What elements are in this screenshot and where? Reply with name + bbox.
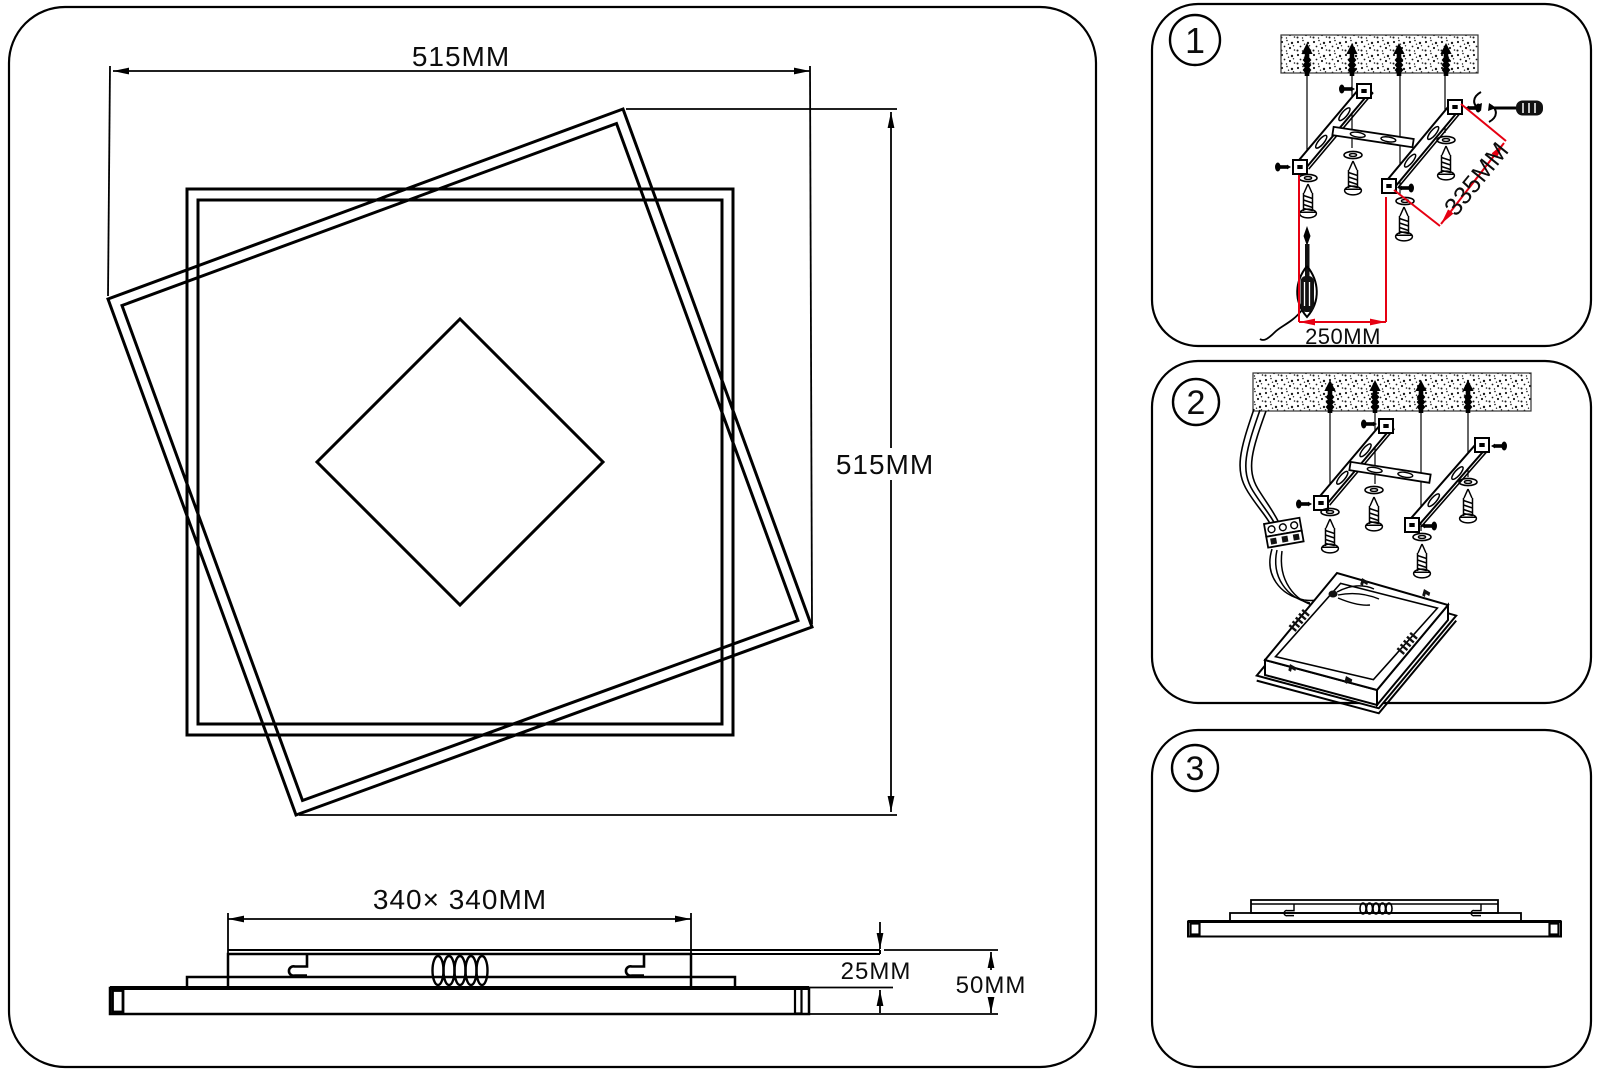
spring-coil-icon [433,956,488,985]
screw-icon [1300,184,1317,218]
screw-icon [1396,207,1413,241]
retainer-clip-icon [289,954,307,976]
step-3-panel: 3 [1152,730,1591,1067]
set-screw-icon [1491,442,1507,451]
step-3-number: 3 [1186,750,1205,788]
set-screw-icon [1296,500,1312,509]
main-drawing-panel: 515MM 515MM 340× 340MM [9,7,1096,1067]
step-2-panel: 2 [1152,361,1591,713]
width-dimension-label: 515MM [412,41,510,72]
cross-strap [1332,127,1413,147]
washer-icon [1299,174,1317,181]
base-panel [110,988,809,1014]
base-end-cap-right [795,989,802,1014]
center-diamond [317,319,603,605]
base-end-cap-left [113,991,124,1013]
screw-icon [1366,497,1383,531]
corner-block-icon [1293,160,1307,174]
mains-wires [1240,409,1280,527]
fixed-frame [187,189,733,735]
side-view-drawing: 340× 340MM [110,884,1026,1014]
set-screw-icon [1275,163,1291,172]
cross-strap [1349,462,1430,483]
bracket-dimension-label: 340× 340MM [373,884,547,915]
total-height-dimension: 50MM [802,950,1026,1014]
spacing-dimension-label: 250MM [1305,324,1381,349]
washer-icon [1344,151,1362,158]
total-height-label: 50MM [956,972,1027,999]
main-panel-border [9,7,1096,1067]
clip-mark-icon [1422,589,1431,598]
step-1-panel: 1 [1152,4,1591,349]
retainer-clip-icon [626,954,644,976]
corner-block-icon [1475,438,1489,452]
washer-icon [1365,486,1383,493]
ceiling-hatch [1253,373,1531,411]
upper-height-dimension: 25MM [802,922,911,1013]
corner-block-icon [1405,518,1419,532]
upper-height-label: 25MM [841,958,912,985]
corner-block-icon [1448,100,1462,114]
washer-icon [1437,136,1455,143]
washer-icon [1321,508,1339,515]
screw-icon [1345,161,1362,195]
fixture-profile [110,950,880,1014]
rotated-frame [108,109,812,815]
height-dimension-label: 515MM [836,449,934,480]
screw-icon [1322,519,1339,553]
width-dimension: 515MM [108,41,812,624]
set-screw-icon [1421,522,1437,531]
screw-icon [1460,489,1477,523]
bracket-dimension: 340× 340MM [228,884,691,988]
diagram-page: 515MM 515MM 340× 340MM [0,0,1599,1075]
screwdriver-icon [1489,101,1543,116]
top-view-drawing [108,109,812,815]
step-1-number: 1 [1185,20,1205,61]
terminal-block-icon [1264,518,1304,548]
step-3-border [1152,730,1591,1067]
corner-block-icon [1379,419,1393,433]
washer-icon [1413,533,1431,540]
wire-grommet-icon [1329,591,1338,598]
installed-fixture-profile [1188,900,1561,937]
corner-block-icon [1314,496,1328,510]
step-2-number: 2 [1187,384,1206,422]
height-dimension: 515MM [299,109,934,815]
corner-block-icon [1357,84,1371,98]
installation-diagram: 515MM 515MM 340× 340MM [0,0,1599,1075]
screw-icon [1414,544,1431,578]
washer-icon [1459,478,1477,485]
mounting-bracket [1385,103,1462,191]
screw-icon [1438,146,1455,180]
driver-housing [228,954,691,988]
fixture-3d-body [1257,573,1457,713]
